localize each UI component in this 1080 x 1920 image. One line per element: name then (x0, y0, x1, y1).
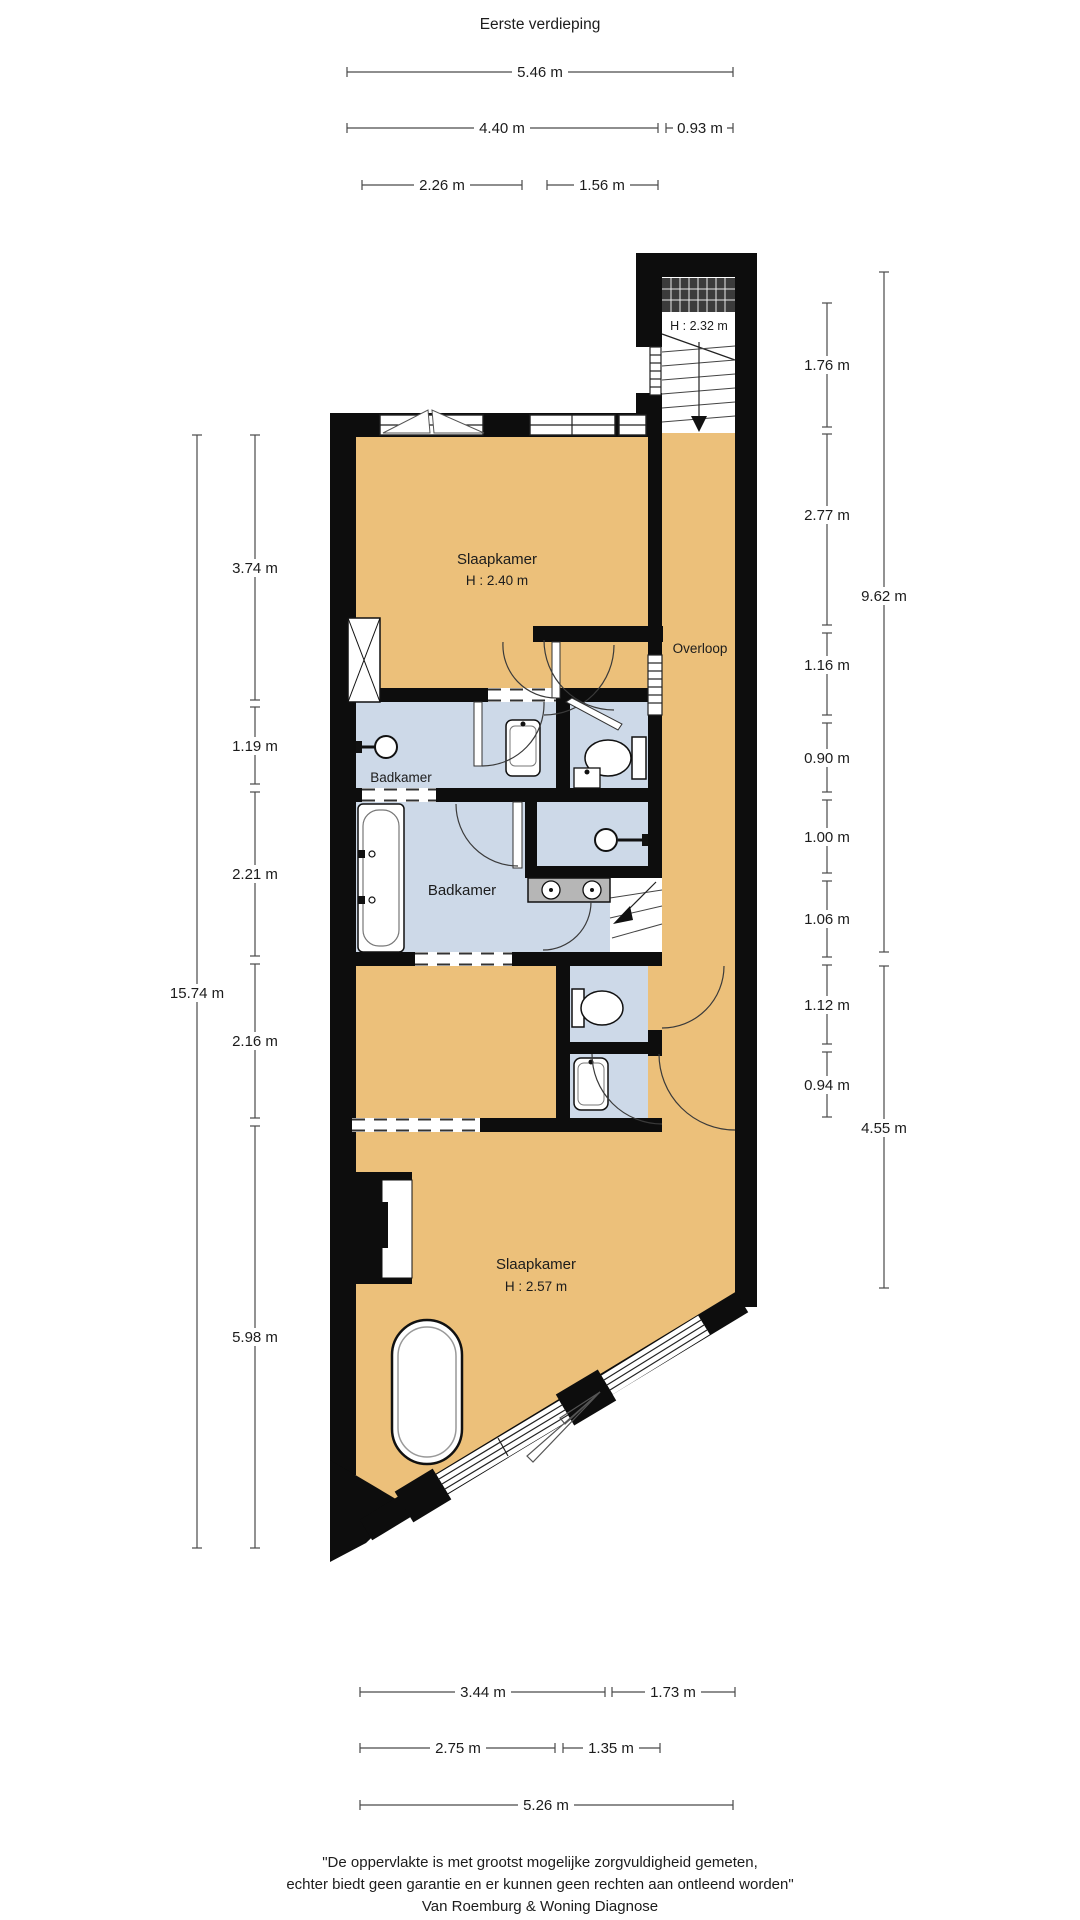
wall-corridor-c (648, 1030, 662, 1056)
bathroom-large-label: Badkamer (428, 882, 496, 899)
floorplan-page: Eerste verdieping (0, 0, 1080, 1920)
dim-right-total: 9.62 m (852, 272, 916, 952)
svg-text:1.76 m: 1.76 m (804, 357, 850, 374)
dim-top-156: 1.56 m (547, 176, 658, 194)
svg-text:5.46 m: 5.46 m (517, 64, 563, 81)
wall-stair-left-upper (636, 277, 662, 347)
svg-text:2.77 m: 2.77 m (804, 507, 850, 524)
dim-right-455: 4.55 m (856, 966, 912, 1288)
svg-text:1.12 m: 1.12 m (804, 997, 850, 1014)
wall-left (330, 413, 356, 1475)
dim-left-216: 2.16 m (227, 964, 283, 1118)
svg-text:2.26 m: 2.26 m (419, 177, 465, 194)
dim-top-226: 2.26 m (362, 176, 522, 194)
dim-right-090: 0.90 m (799, 723, 855, 792)
dim-bottom-173: 1.73 m (612, 1683, 735, 1701)
footer-line-3: Van Roemburg & Woning Diagnose (422, 1898, 658, 1915)
wall-bedroom-bottom (533, 626, 663, 642)
dim-left-598: 5.98 m (227, 1126, 283, 1548)
toilet-icon-2 (572, 989, 623, 1027)
bedroom-top-label: Slaapkamer (457, 551, 537, 568)
opening-1 (488, 688, 556, 702)
door-leaf-bathroom-small (474, 702, 482, 766)
chimney-step (376, 1202, 388, 1248)
opening-4 (352, 1118, 480, 1132)
footer-line-1: "De oppervlakte is met grootst mogelijke… (322, 1854, 758, 1871)
door-leaf-bedroom-top (552, 642, 560, 698)
svg-text:1.00 m: 1.00 m (804, 829, 850, 846)
dim-left-total: 15.74 m (164, 435, 230, 1548)
dim-right-116: 1.16 m (799, 633, 855, 715)
dimensions-left: 15.74 m 3.74 m 1.19 m 2.21 m 2.16 m 5.98… (164, 435, 283, 1548)
dim-right-277: 2.77 m (799, 434, 855, 625)
svg-text:5.98 m: 5.98 m (232, 1329, 278, 1346)
svg-text:1.73 m: 1.73 m (650, 1684, 696, 1701)
footer-disclaimer: "De oppervlakte is met grootst mogelijke… (286, 1854, 793, 1915)
dim-right-106: 1.06 m (799, 881, 855, 957)
wardrobe-icon (348, 618, 380, 702)
landing-label: Overloop (673, 641, 728, 656)
dim-right-112: 1.12 m (799, 965, 855, 1044)
bathtub-builtin-icon (358, 804, 404, 952)
sink-icon-2 (574, 1058, 608, 1110)
wall-wc2-sink-divider (570, 1042, 648, 1054)
svg-text:5.26 m: 5.26 m (523, 1797, 569, 1814)
dim-bottom-344: 3.44 m (360, 1683, 605, 1701)
dim-left-119: 1.19 m (227, 707, 283, 784)
sink-icon-corner (574, 768, 600, 788)
dim-top-440: 4.40 m (347, 119, 658, 137)
sink-icon-1 (506, 720, 540, 776)
dim-right-100: 1.00 m (799, 800, 855, 873)
bedroom-top-height: H : 2.40 m (466, 573, 528, 588)
opening-2 (362, 788, 436, 802)
dim-right-094: 0.94 m (799, 1052, 855, 1117)
door-leaf-bathroom-large (513, 802, 522, 868)
wall-diagonal-pillar-2 (404, 1484, 442, 1507)
svg-text:3.44 m: 3.44 m (460, 1684, 506, 1701)
floorplan-canvas: Eerste verdieping (0, 0, 1080, 1920)
wall-wc2-left (556, 952, 570, 1132)
dim-bottom-135: 1.35 m (563, 1739, 660, 1757)
corridor-doorway-jamb (648, 655, 662, 715)
wall-wc1-divider (556, 688, 570, 802)
svg-text:15.74 m: 15.74 m (170, 985, 224, 1002)
svg-text:0.90 m: 0.90 m (804, 750, 850, 767)
vanity-double-sink-icon (528, 878, 610, 902)
opening-3 (415, 952, 512, 966)
dimensions-bottom: 3.44 m 1.73 m 2.75 m 1.35 m 5.26 m (360, 1683, 735, 1814)
dim-left-221: 2.21 m (227, 792, 283, 956)
dimensions-right: 9.62 m 4.55 m 1.76 m 2.77 m 1.16 m 0.90 … (799, 272, 916, 1288)
svg-text:1.56 m: 1.56 m (579, 177, 625, 194)
wall-shower-bottom (525, 866, 662, 878)
svg-text:1.16 m: 1.16 m (804, 657, 850, 674)
wall-right (735, 253, 757, 1307)
svg-text:9.62 m: 9.62 m (861, 588, 907, 605)
page-title: Eerste verdieping (480, 16, 601, 33)
svg-text:4.55 m: 4.55 m (861, 1120, 907, 1137)
svg-text:1.06 m: 1.06 m (804, 911, 850, 928)
dim-top-093: 0.93 m (666, 119, 733, 137)
dim-bottom-526: 5.26 m (360, 1796, 733, 1814)
bathroom-small-label: Badkamer (370, 770, 432, 785)
dim-bottom-275: 2.75 m (360, 1739, 555, 1757)
bedroom-bottom-height: H : 2.57 m (505, 1279, 567, 1294)
svg-text:0.93 m: 0.93 m (677, 120, 723, 137)
svg-text:4.40 m: 4.40 m (479, 120, 525, 137)
bedroom-bottom-label: Slaapkamer (496, 1256, 576, 1273)
stairwell-height-label: H : 2.32 m (670, 319, 728, 333)
wall-corridor-a (648, 413, 662, 655)
svg-text:1.35 m: 1.35 m (588, 1740, 634, 1757)
svg-text:2.16 m: 2.16 m (232, 1033, 278, 1050)
dim-left-374: 3.74 m (227, 435, 283, 700)
dimensions-top: 5.46 m 4.40 m 0.93 m 2.26 m 1.56 m (347, 63, 733, 194)
bathtub-freestanding-icon (392, 1320, 462, 1464)
dim-top-total: 5.46 m (347, 63, 733, 81)
footer-line-2: echter biedt geen garantie en er kunnen … (286, 1876, 793, 1893)
wall-shower-divider (525, 802, 537, 868)
svg-text:2.21 m: 2.21 m (232, 866, 278, 883)
staircase-down (610, 878, 662, 952)
svg-text:0.94 m: 0.94 m (804, 1077, 850, 1094)
svg-text:1.19 m: 1.19 m (232, 738, 278, 755)
svg-text:2.75 m: 2.75 m (435, 1740, 481, 1757)
svg-text:3.74 m: 3.74 m (232, 560, 278, 577)
dim-right-176: 1.76 m (799, 303, 855, 427)
